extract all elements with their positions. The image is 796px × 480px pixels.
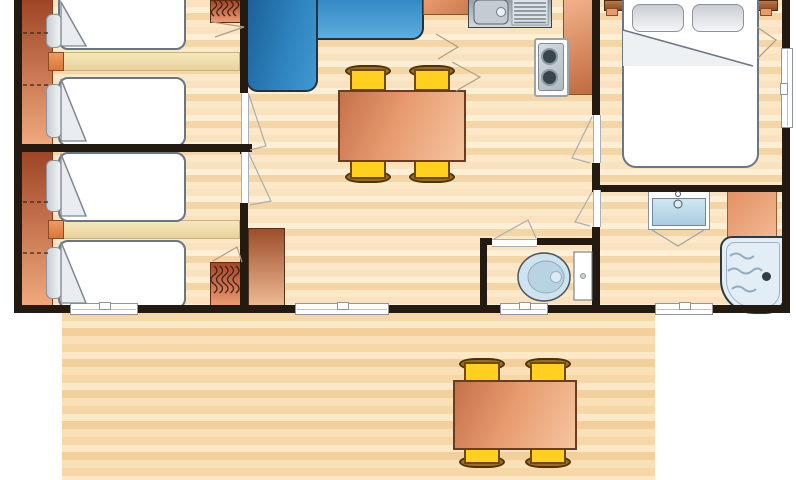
wc-door-opening bbox=[492, 239, 537, 247]
twin-bed-4 bbox=[58, 240, 186, 309]
wall-bedroom-divider bbox=[14, 144, 252, 152]
bathtub bbox=[720, 236, 786, 314]
window-knob bbox=[519, 302, 531, 310]
window-knob bbox=[780, 83, 788, 95]
bedroom2-window bbox=[70, 303, 138, 315]
bedroom2-nightstand bbox=[48, 220, 64, 239]
bedroom2-door-opening bbox=[241, 152, 249, 203]
bathtub-drain bbox=[762, 272, 771, 281]
master-door-opening bbox=[593, 115, 601, 163]
twin-bed-2 bbox=[58, 77, 186, 147]
terrace-table bbox=[453, 380, 577, 450]
washbasin-bowl bbox=[652, 198, 706, 226]
sink-drain bbox=[497, 8, 506, 17]
chair-seat bbox=[414, 69, 450, 91]
dining-table bbox=[338, 90, 466, 162]
twin-bed-4-pillow bbox=[46, 247, 62, 299]
window-knob bbox=[679, 302, 691, 310]
floorplan-canvas bbox=[0, 0, 796, 480]
master-headboard-end-left bbox=[606, 8, 618, 16]
kitchen-sink-drainer bbox=[468, 0, 552, 28]
window-knob bbox=[337, 302, 349, 310]
wall-right bbox=[782, 0, 790, 313]
two-burner-hob bbox=[534, 38, 569, 97]
bathroom-window bbox=[655, 303, 713, 315]
double-bed-pillow-right bbox=[692, 4, 744, 32]
bedroom1-nightstand bbox=[48, 52, 64, 71]
wc-window bbox=[500, 303, 548, 315]
wall-hall-a bbox=[592, 0, 600, 115]
kitchen-worktop-left bbox=[423, 0, 472, 15]
chair-seat bbox=[350, 69, 386, 91]
twin-bed-3-pillow bbox=[46, 160, 62, 212]
corner-sofa-top-section bbox=[300, 0, 424, 40]
twin-bed-1-pillow bbox=[46, 14, 62, 48]
bedroom1-door-opening bbox=[241, 93, 249, 144]
bathroom-shelf-unit bbox=[727, 188, 777, 238]
corner-sofa-side-section bbox=[246, 0, 318, 92]
window-knob bbox=[99, 302, 111, 310]
bathroom-door-opening bbox=[593, 190, 601, 227]
twin-bed-1 bbox=[58, 0, 186, 50]
living-sliding-window bbox=[295, 303, 389, 315]
bedroom2-nightstand-shelf bbox=[48, 220, 240, 239]
double-bed-pillow-left bbox=[632, 4, 684, 32]
wall-master-bottom bbox=[592, 185, 790, 192]
wall-bedrooms-living-c bbox=[240, 203, 248, 305]
wall-wc-top-b bbox=[537, 238, 600, 245]
bedroom2-hanger-wardrobe bbox=[210, 262, 242, 307]
bedroom1-hanger-wardrobe bbox=[210, 0, 242, 23]
twin-bed-3 bbox=[58, 152, 186, 222]
bedroom1-nightstand-shelf bbox=[48, 52, 240, 71]
master-window bbox=[781, 48, 793, 128]
hob-burner-2 bbox=[541, 69, 558, 86]
master-headboard-end-right bbox=[760, 8, 772, 16]
hob-burner-1 bbox=[541, 48, 558, 65]
wall-left bbox=[14, 0, 22, 313]
twin-bed-2-pillow bbox=[46, 84, 62, 138]
wall-wc-left bbox=[480, 238, 487, 313]
wall-bedrooms-living-a bbox=[240, 0, 248, 93]
living-storage-cabinet bbox=[248, 228, 285, 309]
